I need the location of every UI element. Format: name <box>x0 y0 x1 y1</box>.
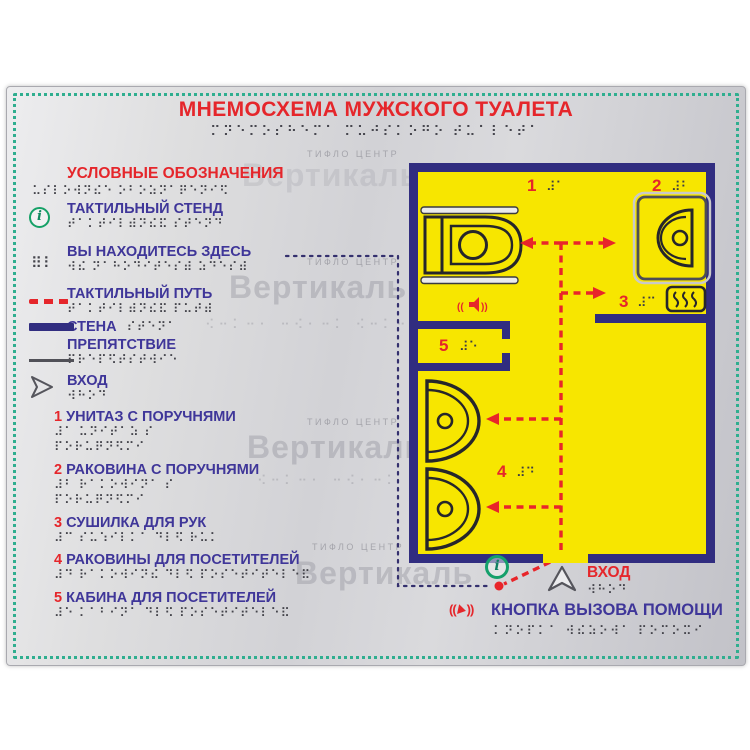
item-number: 3 <box>54 515 62 531</box>
page-title: МНЕМОСХЕМА МУЖСКОГО ТУАЛЕТА <box>7 98 745 122</box>
legend-item-label: 2РАКОВИНА С ПОРУЧНЯМИ <box>54 462 259 478</box>
legend-item-label: 4РАКОВИНЫ ДЛЯ ПОСЕТИТЕЛЕЙ <box>54 552 311 568</box>
plan-label-2: 2 <box>652 176 661 195</box>
tactile-sign-photo: ТИФЛО ЦЕНТР Вертикаль ТИФЛО ЦЕНТР Вертик… <box>0 0 750 750</box>
plan-label-4: 4 <box>497 462 507 481</box>
entrance-triangle <box>549 567 575 590</box>
svg-text:)): )) <box>481 302 488 313</box>
legend-item-you-are-here: ⠿⠇ ВЫ НАХОДИТЕСЬ ЗДЕСЬ ⠺⠮ ⠝⠁⠓⠕⠙⠊⠞⠑⠎⠾ ⠵⠙⠑… <box>29 244 251 275</box>
item-number: 4 <box>54 552 62 568</box>
legend-item-label-text: СУШИЛКА ДЛЯ РУК <box>66 515 206 531</box>
legend-item-5-cabin: 5КАБИНА ДЛЯ ПОСЕТИТЕЛЕЙ ⠼⠑ ⠅⠁⠃⠊⠝⠁ ⠙⠇⠫ ⠏⠕… <box>29 590 291 621</box>
item-number: 2 <box>54 462 62 478</box>
legend-item-label-text: РАКОВИНЫ ДЛЯ ПОСЕТИТЕЛЕЙ <box>66 552 299 568</box>
cabin-wall-bottom <box>418 363 510 371</box>
legend-item-2-sink: 2РАКОВИНА С ПОРУЧНЯМИ ⠼⠃ ⠗⠁⠅⠕⠺⠊⠝⠁ ⠎ ⠏⠕⠗⠥… <box>29 462 259 508</box>
entrance-triangle-icon <box>29 375 55 404</box>
legend-item-obstacle: ПРЕПЯТСТВИЕ ⠏⠗⠑⠏⠫⠞⠎⠞⠺⠊⠑ <box>29 337 179 368</box>
legend-item-braille: ⠼⠑ ⠅⠁⠃⠊⠝⠁ ⠙⠇⠫ ⠏⠕⠎⠑⠞⠊⠞⠑⠇⠑⠯ <box>54 606 291 621</box>
legend-item-braille: ⠏⠗⠑⠏⠫⠞⠎⠞⠺⠊⠑ <box>67 353 179 368</box>
plan-label-4-braille: ⠼⠙ <box>516 465 535 480</box>
legend-item-braille: ⠼⠁ ⠥⠝⠊⠞⠁⠵ ⠎ <box>54 425 236 440</box>
legend-item-label: ВХОД <box>67 373 108 389</box>
wall-bar-icon <box>29 323 74 331</box>
help-button-braille: ⠅⠝⠕⠏⠅⠁ ⠺⠮⠵⠕⠺⠁ ⠏⠕⠍⠕⠭⠊ <box>493 624 705 639</box>
info-icon: i <box>29 207 50 228</box>
legend-item-braille: ⠼⠙ ⠗⠁⠅⠕⠺⠊⠝⠮ ⠙⠇⠫ ⠏⠕⠎⠑⠞⠊⠞⠑⠇⠑⠯ <box>54 568 311 583</box>
red-dashed-line-icon <box>29 299 69 304</box>
item-number: 1 <box>54 409 62 425</box>
entrance-braille: ⠺⠓⠕⠙ <box>587 583 628 598</box>
legend-item-label: ПРЕПЯТСТВИЕ <box>67 337 179 353</box>
legend-item-label-text: УНИТАЗ С ПОРУЧНЯМИ <box>66 409 236 425</box>
legend-heading: УСЛОВНЫЕ ОБОЗНАЧЕНИЯ <box>67 165 283 183</box>
you-are-here-dots-icon: ⠿⠇ <box>31 254 55 272</box>
help-button-label: КНОПКА ВЫЗОВА ПОМОЩИ <box>491 601 723 620</box>
plan-label-1-braille: ⠼⠁ <box>546 179 565 194</box>
watermark-small: ТИФЛО ЦЕНТР <box>307 417 399 427</box>
wall-room-2-3 <box>595 314 715 323</box>
svg-text:((: (( <box>457 302 464 313</box>
cabin-wall-top <box>418 321 510 329</box>
legend-item-braille: ⠎⠞⠑⠝⠁ <box>127 320 178 334</box>
plan-label-5: 5 <box>439 336 448 355</box>
legend-item-4-sinks: 4РАКОВИНЫ ДЛЯ ПОСЕТИТЕЛЕЙ ⠼⠙ ⠗⠁⠅⠕⠺⠊⠝⠮ ⠙⠇… <box>29 552 311 583</box>
legend-item-braille: ⠞⠁⠅⠞⠊⠇⠾⠝⠮⠯ ⠎⠞⠑⠝⠙ <box>67 217 224 232</box>
legend-item-braille: ⠏⠕⠗⠥⠟⠝⠫⠍⠊ <box>54 440 236 455</box>
page-title-braille: ⠍⠝⠑⠍⠕⠎⠓⠑⠍⠁ ⠍⠥⠚⠎⠅⠕⠛⠕ ⠞⠥⠁⠇⠑⠞⠁ <box>7 123 745 140</box>
watermark-small: ТИФЛО ЦЕНТР <box>312 542 404 552</box>
plan-label-3-braille: ⠼⠉ <box>637 295 656 310</box>
legend-item-label: 1УНИТАЗ С ПОРУЧНЯМИ <box>54 409 236 425</box>
floor-plan: 1 ⠼⠁ 2 ⠼⠃ 3 ⠼⠉ (( <box>409 163 715 563</box>
legend-item-label: ВЫ НАХОДИТЕСЬ ЗДЕСЬ <box>67 244 251 260</box>
plan-label-2-braille: ⠼⠃ <box>671 179 690 194</box>
legend-item-label-text: РАКОВИНА С ПОРУЧНЯМИ <box>66 462 259 478</box>
legend-item-braille: ⠼⠃ ⠗⠁⠅⠕⠺⠊⠝⠁ ⠎ <box>54 478 259 493</box>
legend-item-3-dryer: 3СУШИЛКА ДЛЯ РУК ⠼⠉ ⠎⠥⠱⠊⠇⠅⠁ ⠙⠇⠫ ⠗⠥⠅ <box>29 515 220 546</box>
legend-item-label-text: СТЕНА <box>67 319 117 335</box>
watermark-braille: ⠪⠒⠅⠒⠂ ⠒⠪⠂⠒⠅ ⠪⠒⠅⠒ <box>205 317 410 333</box>
legend-item-tactile-path: ТАКТИЛЬНЫЙ ПУТЬ ⠞⠁⠅⠞⠊⠇⠾⠝⠮⠯ ⠏⠥⠞⠾ <box>29 286 214 317</box>
watermark-big: Вертикаль <box>229 269 407 306</box>
legend-item-label: 3СУШИЛКА ДЛЯ РУК <box>54 515 220 531</box>
legend-item-braille: ⠺⠮ ⠝⠁⠓⠕⠙⠊⠞⠑⠎⠾ ⠵⠙⠑⠎⠾ <box>67 260 251 275</box>
legend-item-label: СТЕНА⠎⠞⠑⠝⠁ <box>67 319 177 335</box>
plan-label-3: 3 <box>619 292 628 311</box>
sign-panel: ТИФЛО ЦЕНТР Вертикаль ТИФЛО ЦЕНТР Вертик… <box>6 86 746 666</box>
watermark-small: ТИФЛО ЦЕНТР <box>307 257 399 267</box>
legend-item-label: ТАКТИЛЬНЫЙ СТЕНД <box>67 201 224 217</box>
plan-label-1: 1 <box>527 176 536 195</box>
legend-item-label: 5КАБИНА ДЛЯ ПОСЕТИТЕЛЕЙ <box>54 590 291 606</box>
legend-item-1-toilet: 1УНИТАЗ С ПОРУЧНЯМИ ⠼⠁ ⠥⠝⠊⠞⠁⠵ ⠎ ⠏⠕⠗⠥⠟⠝⠫⠍… <box>29 409 236 455</box>
legend-item-label: ТАКТИЛЬНЫЙ ПУТЬ <box>67 286 214 302</box>
legend-item-braille: ⠼⠉ ⠎⠥⠱⠊⠇⠅⠁ ⠙⠇⠫ ⠗⠥⠅ <box>54 531 220 546</box>
legend-item-label-text: КАБИНА ДЛЯ ПОСЕТИТЕЛЕЙ <box>66 590 276 606</box>
thin-line-icon <box>29 359 74 362</box>
legend-item-wall: СТЕНА⠎⠞⠑⠝⠁ <box>29 319 177 335</box>
legend-item-braille: ⠞⠁⠅⠞⠊⠇⠾⠝⠮⠯ ⠏⠥⠞⠾ <box>67 302 214 317</box>
you-are-here-dot <box>495 582 504 591</box>
legend-heading-braille: ⠥⠎⠇⠕⠺⠝⠮⠑ ⠕⠃⠕⠵⠝⠁⠟⠑⠝⠊⠫ <box>32 184 229 199</box>
help-speaker-icon: (()) <box>449 602 473 617</box>
legend-item-braille: ⠺⠓⠕⠙ <box>67 389 108 404</box>
legend-item-entrance: ВХОД ⠺⠓⠕⠙ <box>29 373 108 404</box>
info-point-icon: i <box>485 555 509 579</box>
legend-item-braille: ⠏⠕⠗⠥⠟⠝⠫⠍⠊ <box>54 493 259 508</box>
watermark-big: Вертикаль <box>247 429 425 466</box>
plan-label-5-braille: ⠼⠑ <box>459 339 478 354</box>
entrance-label: ВХОД <box>587 564 630 582</box>
legend-item-tactile-stand: i ТАКТИЛЬНЫЙ СТЕНД ⠞⠁⠅⠞⠊⠇⠾⠝⠮⠯ ⠎⠞⠑⠝⠙ <box>29 201 224 232</box>
item-number: 5 <box>54 590 62 606</box>
